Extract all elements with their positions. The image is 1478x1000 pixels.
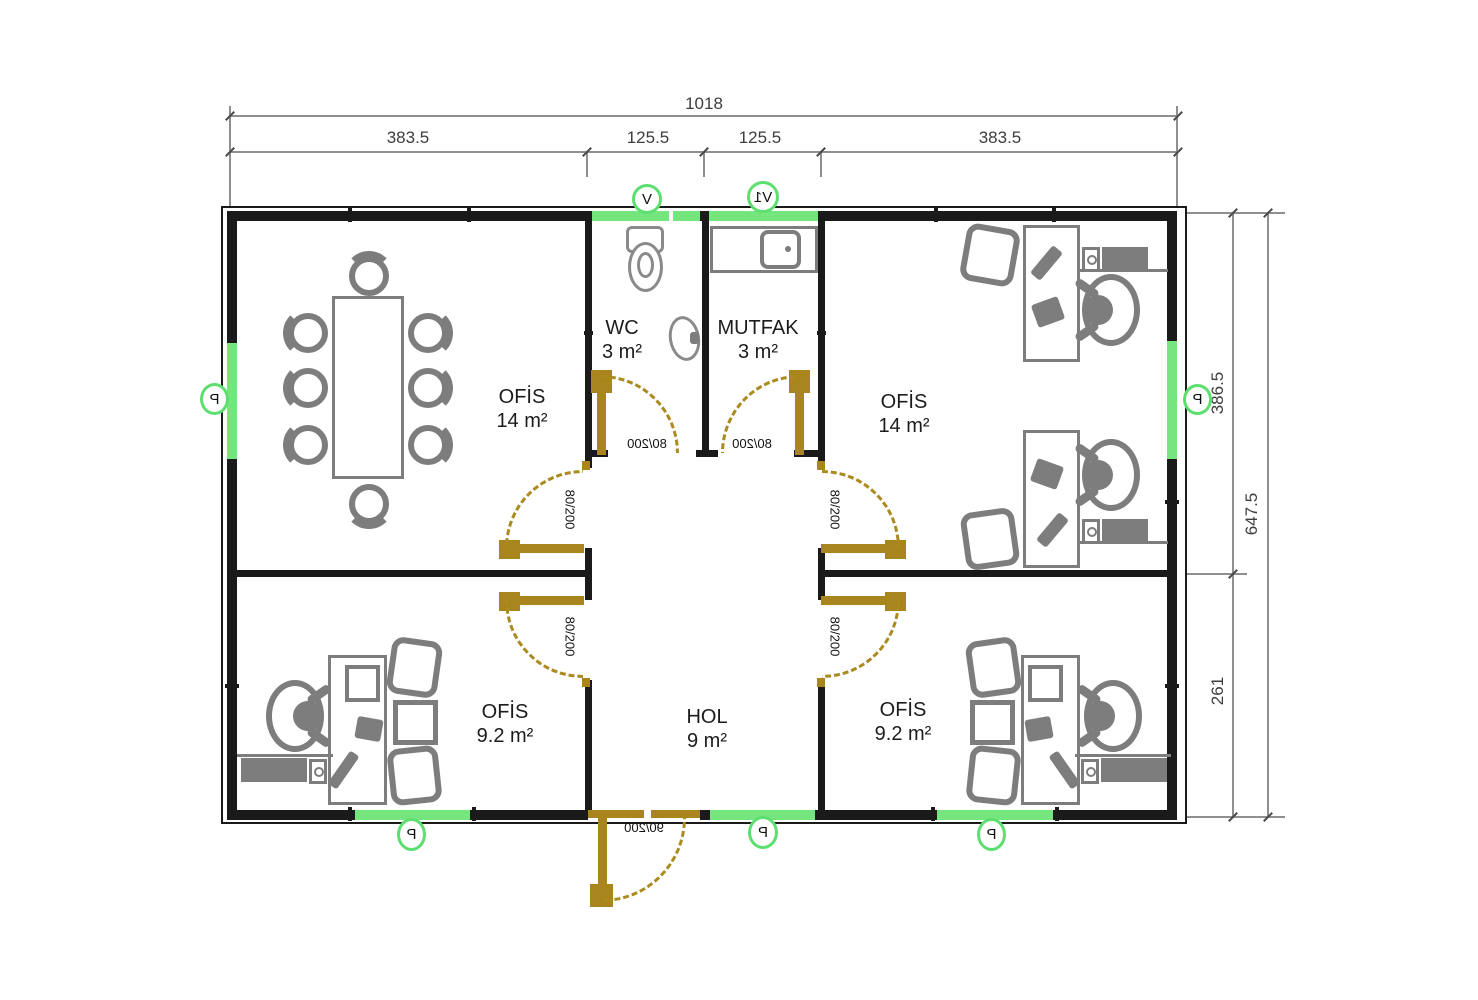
vent-tag-v1-label: V1 bbox=[754, 189, 772, 206]
conference-chair bbox=[349, 484, 389, 524]
wall-joint bbox=[348, 208, 352, 222]
extension-line bbox=[1185, 573, 1247, 575]
wall-joint bbox=[467, 208, 471, 222]
room-label-mutfak: MUTFAK 3 m² bbox=[693, 316, 823, 364]
dim-right-total: 647.5 bbox=[1242, 482, 1262, 546]
guest-chair bbox=[965, 744, 1022, 806]
person-at-desk bbox=[1080, 272, 1142, 348]
vent-tag-v1: V1 bbox=[747, 181, 779, 213]
room-name: OFİS bbox=[838, 698, 968, 722]
office-bl-door-size: 80/200 bbox=[563, 608, 578, 666]
wall-left bbox=[227, 211, 237, 820]
vent-tag-v: V bbox=[632, 184, 662, 214]
wc-door-size: 80/200 bbox=[618, 436, 676, 451]
wall-divider-left bbox=[237, 570, 585, 577]
room-area: 14 m² bbox=[457, 409, 587, 433]
extension-line bbox=[820, 153, 822, 177]
conference-chair bbox=[408, 313, 448, 353]
wall-divider-right bbox=[825, 570, 1167, 577]
room-area: 9 m² bbox=[642, 729, 772, 753]
window-tag-p-bottom-2: P bbox=[748, 816, 778, 849]
monitor-icon bbox=[345, 665, 380, 702]
pc-tower-icon bbox=[1081, 759, 1099, 784]
person-at-desk bbox=[1082, 678, 1144, 754]
wall-hall-right bbox=[818, 548, 825, 600]
window-tag-label: P bbox=[987, 826, 997, 843]
guest-chair bbox=[385, 636, 443, 700]
conference-chair bbox=[288, 313, 328, 353]
conference-table bbox=[332, 296, 404, 479]
door-frame-bit bbox=[817, 678, 825, 687]
room-label-office-br: OFİS 9.2 m² bbox=[838, 698, 968, 746]
room-name: OFİS bbox=[457, 385, 587, 409]
person-head bbox=[293, 701, 323, 731]
room-label-office-bl: OFİS 9.2 m² bbox=[440, 700, 570, 748]
door-frame-bit bbox=[817, 461, 825, 470]
room-area: 9.2 m² bbox=[838, 722, 968, 746]
window-right bbox=[1167, 341, 1177, 459]
wall-joint bbox=[1055, 807, 1059, 821]
window-tag-p-bottom-1: P bbox=[397, 818, 426, 851]
room-name: WC bbox=[557, 316, 687, 340]
room-area: 9.2 m² bbox=[440, 724, 570, 748]
person-head bbox=[1083, 295, 1113, 325]
wall-top bbox=[227, 211, 1177, 221]
coffee-table bbox=[970, 700, 1015, 745]
wall-hall-left bbox=[585, 548, 592, 600]
room-name: OFİS bbox=[440, 700, 570, 724]
dim-top-seg-4: 383.5 bbox=[968, 128, 1032, 148]
wall-joint bbox=[1165, 684, 1179, 688]
wall-joint bbox=[1052, 208, 1056, 222]
wall-joint bbox=[348, 807, 352, 821]
extension-line bbox=[703, 153, 705, 177]
window-tag-p-right: P bbox=[1183, 384, 1212, 415]
pc-tower-icon bbox=[309, 759, 327, 784]
room-area: 3 m² bbox=[693, 340, 823, 364]
person-head bbox=[1083, 460, 1113, 490]
extension-line bbox=[1176, 106, 1178, 208]
room-name: OFİS bbox=[839, 390, 969, 414]
guest-chair bbox=[959, 507, 1021, 572]
keyboard-icon bbox=[354, 716, 383, 742]
vent-tag-v-label: V bbox=[642, 191, 652, 208]
toilet-bowl-inner bbox=[637, 252, 654, 278]
door-frame-bit bbox=[582, 678, 590, 687]
person-head bbox=[1085, 701, 1115, 731]
dim-line-top-total bbox=[230, 115, 1178, 117]
window-tag-p-bottom-3: P bbox=[977, 818, 1006, 851]
conference-chair bbox=[408, 368, 448, 408]
room-label-wc: WC 3 m² bbox=[557, 316, 687, 364]
wall-right bbox=[1167, 211, 1177, 820]
cabinet-edge bbox=[1080, 541, 1168, 544]
floor-plan: 1018 383.5 125.5 125.5 383.5 386.5 261 6… bbox=[0, 0, 1478, 1000]
guest-chair bbox=[964, 636, 1022, 700]
desk bbox=[1023, 430, 1080, 568]
room-area: 14 m² bbox=[839, 414, 969, 438]
dim-line-right-total bbox=[1267, 213, 1269, 818]
monitor-icon bbox=[1028, 665, 1063, 702]
office-tr-door-size: 80/200 bbox=[828, 481, 843, 539]
side-cabinet bbox=[1101, 758, 1167, 782]
sink-drain bbox=[785, 246, 791, 252]
office-br-door-size: 80/200 bbox=[828, 608, 843, 666]
room-label-office-tr: OFİS 14 m² bbox=[839, 390, 969, 438]
extension-line bbox=[229, 106, 231, 208]
extension-line bbox=[586, 153, 588, 177]
window-tag-label: P bbox=[407, 826, 417, 843]
side-cabinet bbox=[241, 758, 307, 782]
person-at-desk bbox=[1080, 437, 1142, 513]
kitchen-sink-icon bbox=[760, 230, 801, 269]
conference-chair bbox=[288, 425, 328, 465]
cabinet-edge bbox=[237, 754, 333, 757]
wall-joint bbox=[931, 807, 935, 821]
dim-line-right-segments bbox=[1232, 213, 1234, 818]
room-label-office-tl: OFİS 14 m² bbox=[457, 385, 587, 433]
room-name: HOL bbox=[642, 705, 772, 729]
wall-hall-right bbox=[818, 680, 825, 810]
entrance-door-size: 90/200 bbox=[615, 820, 673, 835]
conference-chair bbox=[288, 368, 328, 408]
office-tl-door-size: 80/200 bbox=[563, 481, 578, 539]
entrance-frame-notch bbox=[644, 810, 651, 818]
room-label-hol: HOL 9 m² bbox=[642, 705, 772, 753]
dim-top-seg-3: 125.5 bbox=[728, 128, 792, 148]
wall-wc-bottom bbox=[696, 450, 718, 457]
conference-chair bbox=[349, 256, 389, 296]
window-tag-label: P bbox=[1193, 391, 1203, 408]
wall-joint bbox=[1165, 500, 1179, 504]
window-tag-p-left: P bbox=[200, 383, 229, 415]
room-name: MUTFAK bbox=[693, 316, 823, 340]
person-at-desk bbox=[264, 678, 326, 754]
dim-top-seg-1: 383.5 bbox=[376, 128, 440, 148]
window-tag-label: P bbox=[758, 824, 768, 841]
sink-tap bbox=[690, 332, 699, 344]
guest-chair bbox=[386, 744, 443, 806]
dim-top-total: 1018 bbox=[672, 94, 736, 114]
wall-joint bbox=[934, 208, 938, 222]
window-frame-notch bbox=[669, 211, 673, 221]
wall-joint bbox=[472, 807, 476, 821]
dim-right-seg-2: 261 bbox=[1208, 659, 1228, 723]
cabinet-edge bbox=[1075, 754, 1171, 757]
conference-chair bbox=[408, 425, 448, 465]
wall-hall-left bbox=[585, 680, 592, 810]
dim-top-seg-2: 125.5 bbox=[616, 128, 680, 148]
room-area: 3 m² bbox=[557, 340, 687, 364]
wall-joint bbox=[225, 684, 239, 688]
coffee-table bbox=[393, 700, 438, 745]
guest-chair bbox=[958, 222, 1021, 288]
door-frame-bit bbox=[582, 461, 590, 470]
mutfak-door-size: 80/200 bbox=[723, 436, 781, 451]
keyboard-icon bbox=[1024, 716, 1053, 742]
window-tag-label: P bbox=[210, 391, 220, 408]
